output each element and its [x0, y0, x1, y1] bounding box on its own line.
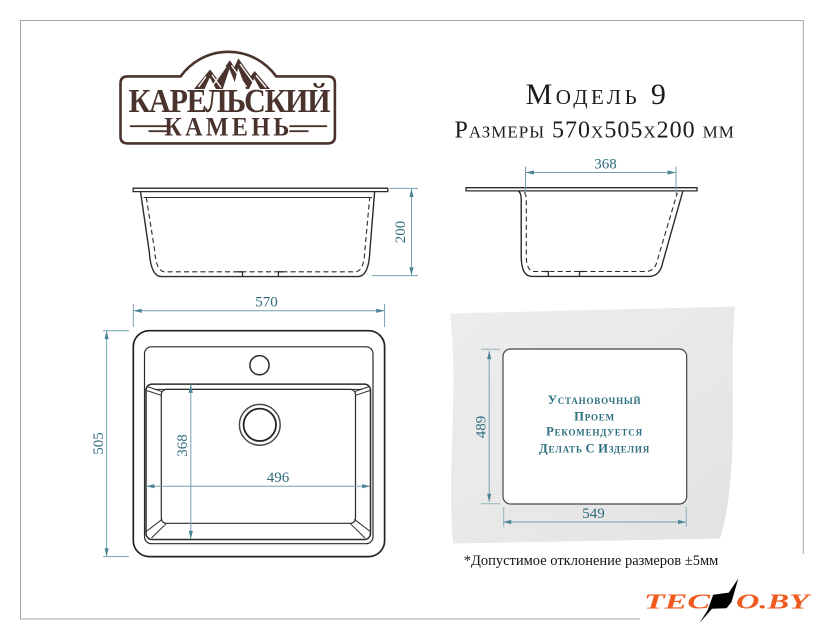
svg-text:489: 489	[473, 416, 489, 439]
svg-text:Размеры 570х505х200 мм: Размеры 570х505х200 мм	[455, 118, 735, 144]
svg-text:368: 368	[594, 156, 617, 172]
svg-text:570: 570	[255, 295, 278, 311]
svg-text:Установочный: Установочный	[548, 393, 642, 407]
svg-text:Делать С Изделия: Делать С Изделия	[539, 441, 650, 455]
svg-text:O.BY: O.BY	[736, 590, 812, 614]
svg-text:496: 496	[267, 470, 290, 486]
svg-text:TEC: TEC	[644, 590, 712, 614]
svg-text:Модель 9: Модель 9	[526, 78, 670, 111]
svg-text:Рекомендуется: Рекомендуется	[546, 425, 643, 439]
svg-text:200: 200	[393, 221, 409, 244]
svg-text:*Допустимое отклонение размеро: *Допустимое отклонение размеров ±5мм	[464, 553, 719, 569]
svg-text:КАМЕНЬ: КАМЕНЬ	[164, 114, 292, 142]
svg-text:Проем: Проем	[574, 409, 615, 423]
svg-text:368: 368	[175, 434, 191, 457]
svg-text:505: 505	[91, 432, 107, 455]
svg-text:549: 549	[582, 506, 605, 522]
